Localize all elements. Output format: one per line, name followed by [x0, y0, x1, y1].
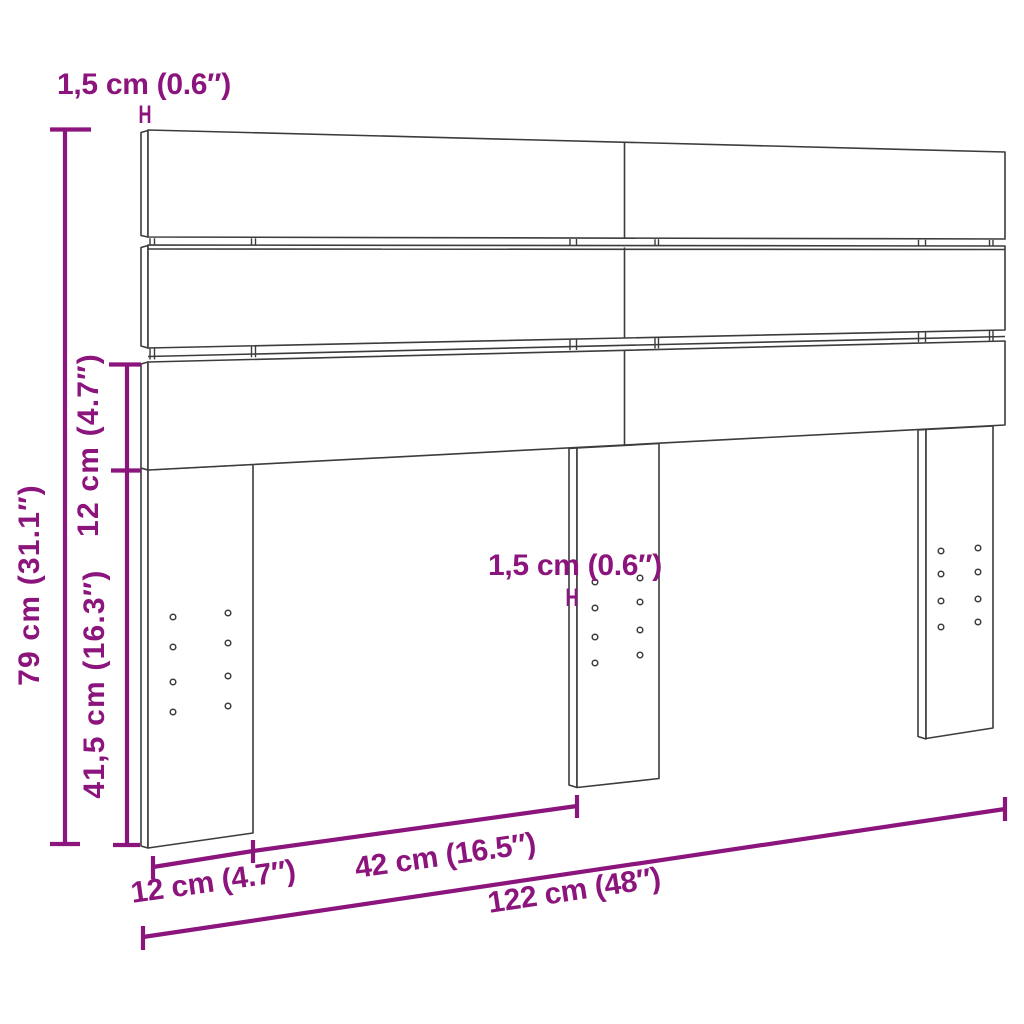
leg-left	[141, 465, 253, 849]
dim-line-panel-and-leg-height	[109, 364, 141, 845]
slat-middle	[141, 245, 1005, 348]
dim-label-leg-height: 41,5 cm (16.3″)	[78, 568, 111, 800]
leg-center	[569, 444, 659, 788]
headboard-line-drawing	[0, 0, 1024, 1024]
thickness-marker-middle-icon: H	[564, 587, 580, 609]
leg-right-face	[926, 426, 993, 739]
headboard-dimension-diagram: 1,5 cm (0.6″) H 1,5 cm (0.6″) H 79 cm (3…	[0, 0, 1024, 1024]
slat-top-face	[148, 130, 1005, 239]
slat-middle-top-face-line	[148, 249, 1005, 250]
dim-label-total-height: 79 cm (31.1″)	[13, 460, 46, 710]
leg-left-side-edge	[141, 468, 148, 848]
dim-label-mid-thickness: 1,5 cm (0.6″)	[488, 549, 662, 582]
dim-label-panel-height: 12 cm (4.7″)	[72, 352, 105, 538]
leg-left-face	[148, 465, 253, 849]
slat-middle-face	[148, 245, 1005, 348]
leg-right	[918, 426, 993, 739]
leg-center-face	[577, 444, 659, 788]
slat-middle-side-edge	[141, 246, 148, 349]
leg-right-side-edge	[918, 430, 926, 740]
thickness-marker-top-icon: H	[137, 104, 153, 126]
dim-label-top-thickness: 1,5 cm (0.6″)	[57, 68, 231, 101]
leg-center-side-edge	[569, 448, 577, 788]
slat-top	[141, 130, 1005, 239]
slat-top-side-edge	[141, 131, 148, 238]
slat-bottom-side-edge	[141, 362, 148, 470]
